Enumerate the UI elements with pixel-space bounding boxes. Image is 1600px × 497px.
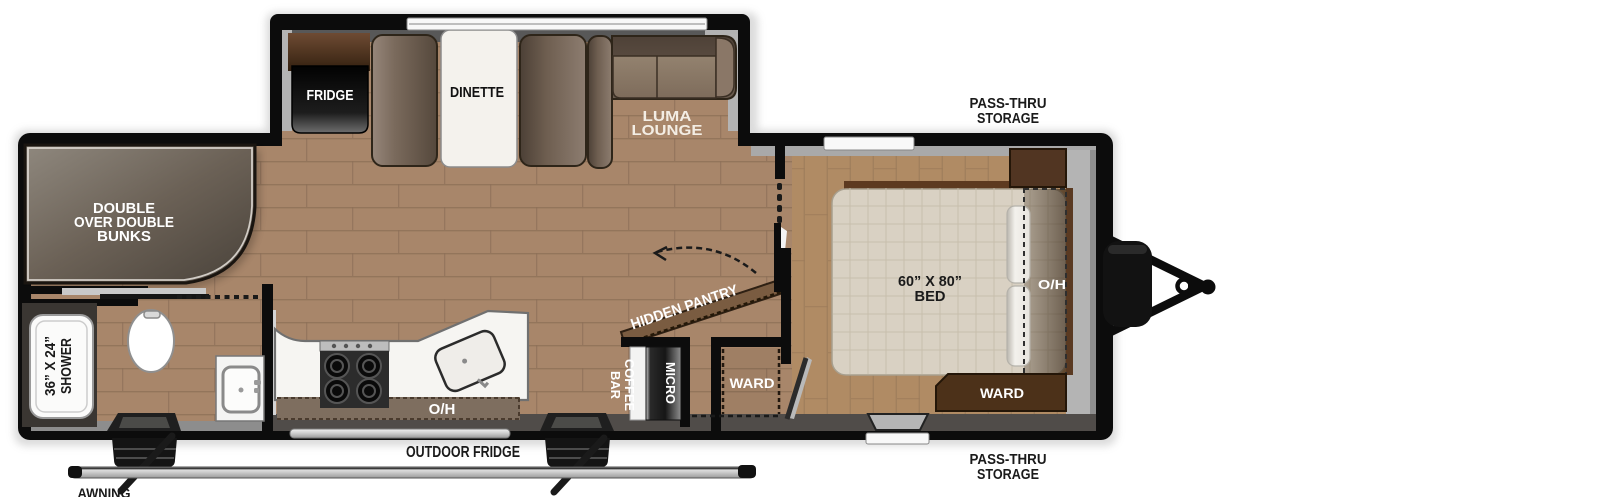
svg-text:O/H: O/H	[429, 401, 456, 418]
svg-text:AWNING: AWNING	[78, 486, 131, 497]
svg-text:STORAGE: STORAGE	[977, 467, 1039, 483]
svg-text:DINETTE: DINETTE	[450, 84, 504, 101]
svg-text:BED: BED	[915, 289, 946, 305]
svg-text:LOUNGE: LOUNGE	[632, 122, 703, 139]
svg-text:SHOWER: SHOWER	[58, 338, 75, 394]
svg-text:PASS-THRU: PASS-THRU	[970, 452, 1047, 468]
svg-text:OUTDOOR FRIDGE: OUTDOOR FRIDGE	[406, 444, 520, 461]
svg-text:O/H: O/H	[1038, 277, 1066, 292]
svg-text:BUNKS: BUNKS	[97, 229, 151, 245]
svg-text:60” X 80”: 60” X 80”	[898, 274, 962, 290]
svg-text:FRIDGE: FRIDGE	[307, 88, 354, 104]
svg-text:PASS-THRU: PASS-THRU	[970, 96, 1047, 112]
svg-text:WARD: WARD	[980, 386, 1024, 401]
svg-text:STORAGE: STORAGE	[977, 111, 1039, 127]
svg-text:36” X 24”: 36” X 24”	[42, 336, 59, 396]
svg-text:MICRO: MICRO	[663, 362, 678, 404]
svg-text:WARD: WARD	[730, 375, 775, 391]
